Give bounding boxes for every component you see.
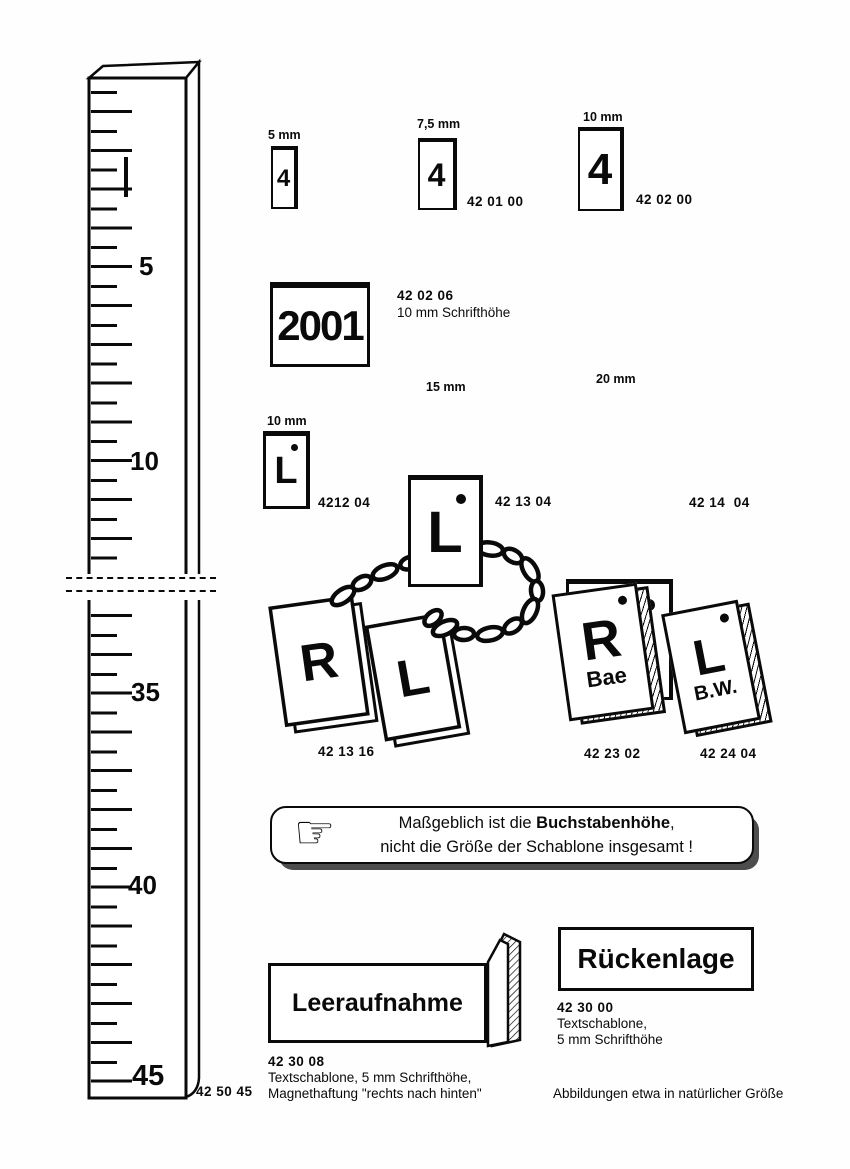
- template-glyph: 4: [588, 145, 612, 195]
- text-template-rueckenlage: Rückenlage: [558, 927, 754, 991]
- order-code: 42 23 02: [584, 746, 641, 761]
- notice-box: ☞ Maßgeblich ist die Buchstabenhöhe, nic…: [270, 806, 754, 864]
- initial-tile-r-bae: R Bae: [552, 583, 655, 722]
- ruler-mark: 10: [130, 448, 159, 474]
- ruler-ticks-short-top: [91, 91, 117, 560]
- hole-dot: [617, 595, 627, 605]
- template-glyph: 4: [428, 157, 446, 194]
- template-subtext: Bae: [585, 664, 628, 691]
- year-template-2001: 2001: [270, 282, 370, 367]
- letter-template-10mm: L: [263, 431, 310, 509]
- letter-template-15mm: L: [408, 475, 483, 587]
- notice-line1-post: ,: [670, 814, 675, 832]
- number-template-5mm: 4: [271, 146, 298, 209]
- text-template-leeraufnahme: Leeraufnahme: [268, 963, 487, 1043]
- template-glyph: L: [427, 499, 462, 566]
- template-desc: Textschablone,: [557, 1016, 647, 1031]
- chain-letter-r: R: [297, 631, 342, 694]
- ruler-mark: 45: [132, 1062, 164, 1091]
- template-glyph: L: [690, 631, 729, 683]
- number-template-10mm: 4: [578, 127, 624, 211]
- notice-line2: nicht die Größe der Schablone insgesamt …: [335, 838, 738, 857]
- template-glyph: L: [274, 450, 297, 493]
- template-desc: Magnethaftung "rechts nach hinten": [268, 1086, 482, 1101]
- template-label: Rückenlage: [577, 943, 734, 975]
- template-desc: Textschablone, 5 mm Schrifthöhe,: [268, 1070, 471, 1085]
- template-glyph: R: [579, 613, 625, 669]
- number-template-7-5mm: 4: [418, 138, 457, 210]
- notice-line1-bold: Buchstabenhöhe: [536, 814, 670, 832]
- order-code: 42 14 04: [689, 495, 750, 510]
- order-code: 42 01 00: [467, 194, 524, 209]
- ruler-ticks-short-bottom: [91, 634, 117, 1066]
- size-label: 5 mm: [268, 128, 301, 142]
- template-desc: 10 mm Schrifthöhe: [397, 305, 510, 320]
- size-label: 20 mm: [596, 372, 636, 386]
- hole-dot: [456, 494, 466, 504]
- footer-note: Abbildungen etwa in natürlicher Größe: [553, 1086, 783, 1101]
- hole-dot: [291, 444, 298, 451]
- ruler-break: [66, 574, 216, 600]
- order-code: 42 24 04: [700, 746, 757, 761]
- ruler-pen-mark: [124, 157, 128, 197]
- chain-tile-r: R: [270, 596, 377, 733]
- catalog-page: R L: [0, 0, 850, 1169]
- template-label: Leeraufnahme: [292, 989, 463, 1018]
- size-label: 10 mm: [583, 110, 623, 124]
- size-label: 10 mm: [267, 414, 307, 428]
- ruler-mark: 35: [131, 679, 160, 705]
- order-code: 42 13 04: [495, 494, 552, 509]
- ruler-mark: 5: [139, 253, 153, 279]
- size-label: 15 mm: [426, 380, 466, 394]
- hole-dot: [719, 613, 730, 624]
- order-code: 4212 04: [318, 495, 370, 510]
- ruler-mark: 40: [128, 872, 157, 898]
- ruler-order-code: 42 50 45: [196, 1084, 253, 1099]
- notice-line1-pre: Maßgeblich ist die: [399, 814, 537, 832]
- tile-front-face: R Bae: [552, 583, 655, 722]
- size-label: 7,5 mm: [417, 117, 460, 131]
- notice-text: Maßgeblich ist die Buchstabenhöhe, nicht…: [335, 814, 752, 857]
- order-code: 42 30 08: [268, 1054, 325, 1069]
- order-code: 42 30 00: [557, 1000, 614, 1015]
- template-glyph: 2001: [277, 302, 362, 350]
- template-glyph: 4: [277, 165, 290, 193]
- plate-fold: [488, 934, 520, 1046]
- order-code: 42 02 00: [636, 192, 693, 207]
- order-code: 42 02 06: [397, 288, 454, 303]
- template-desc: 5 mm Schrifthöhe: [557, 1032, 663, 1047]
- order-code: 42 13 16: [318, 744, 375, 759]
